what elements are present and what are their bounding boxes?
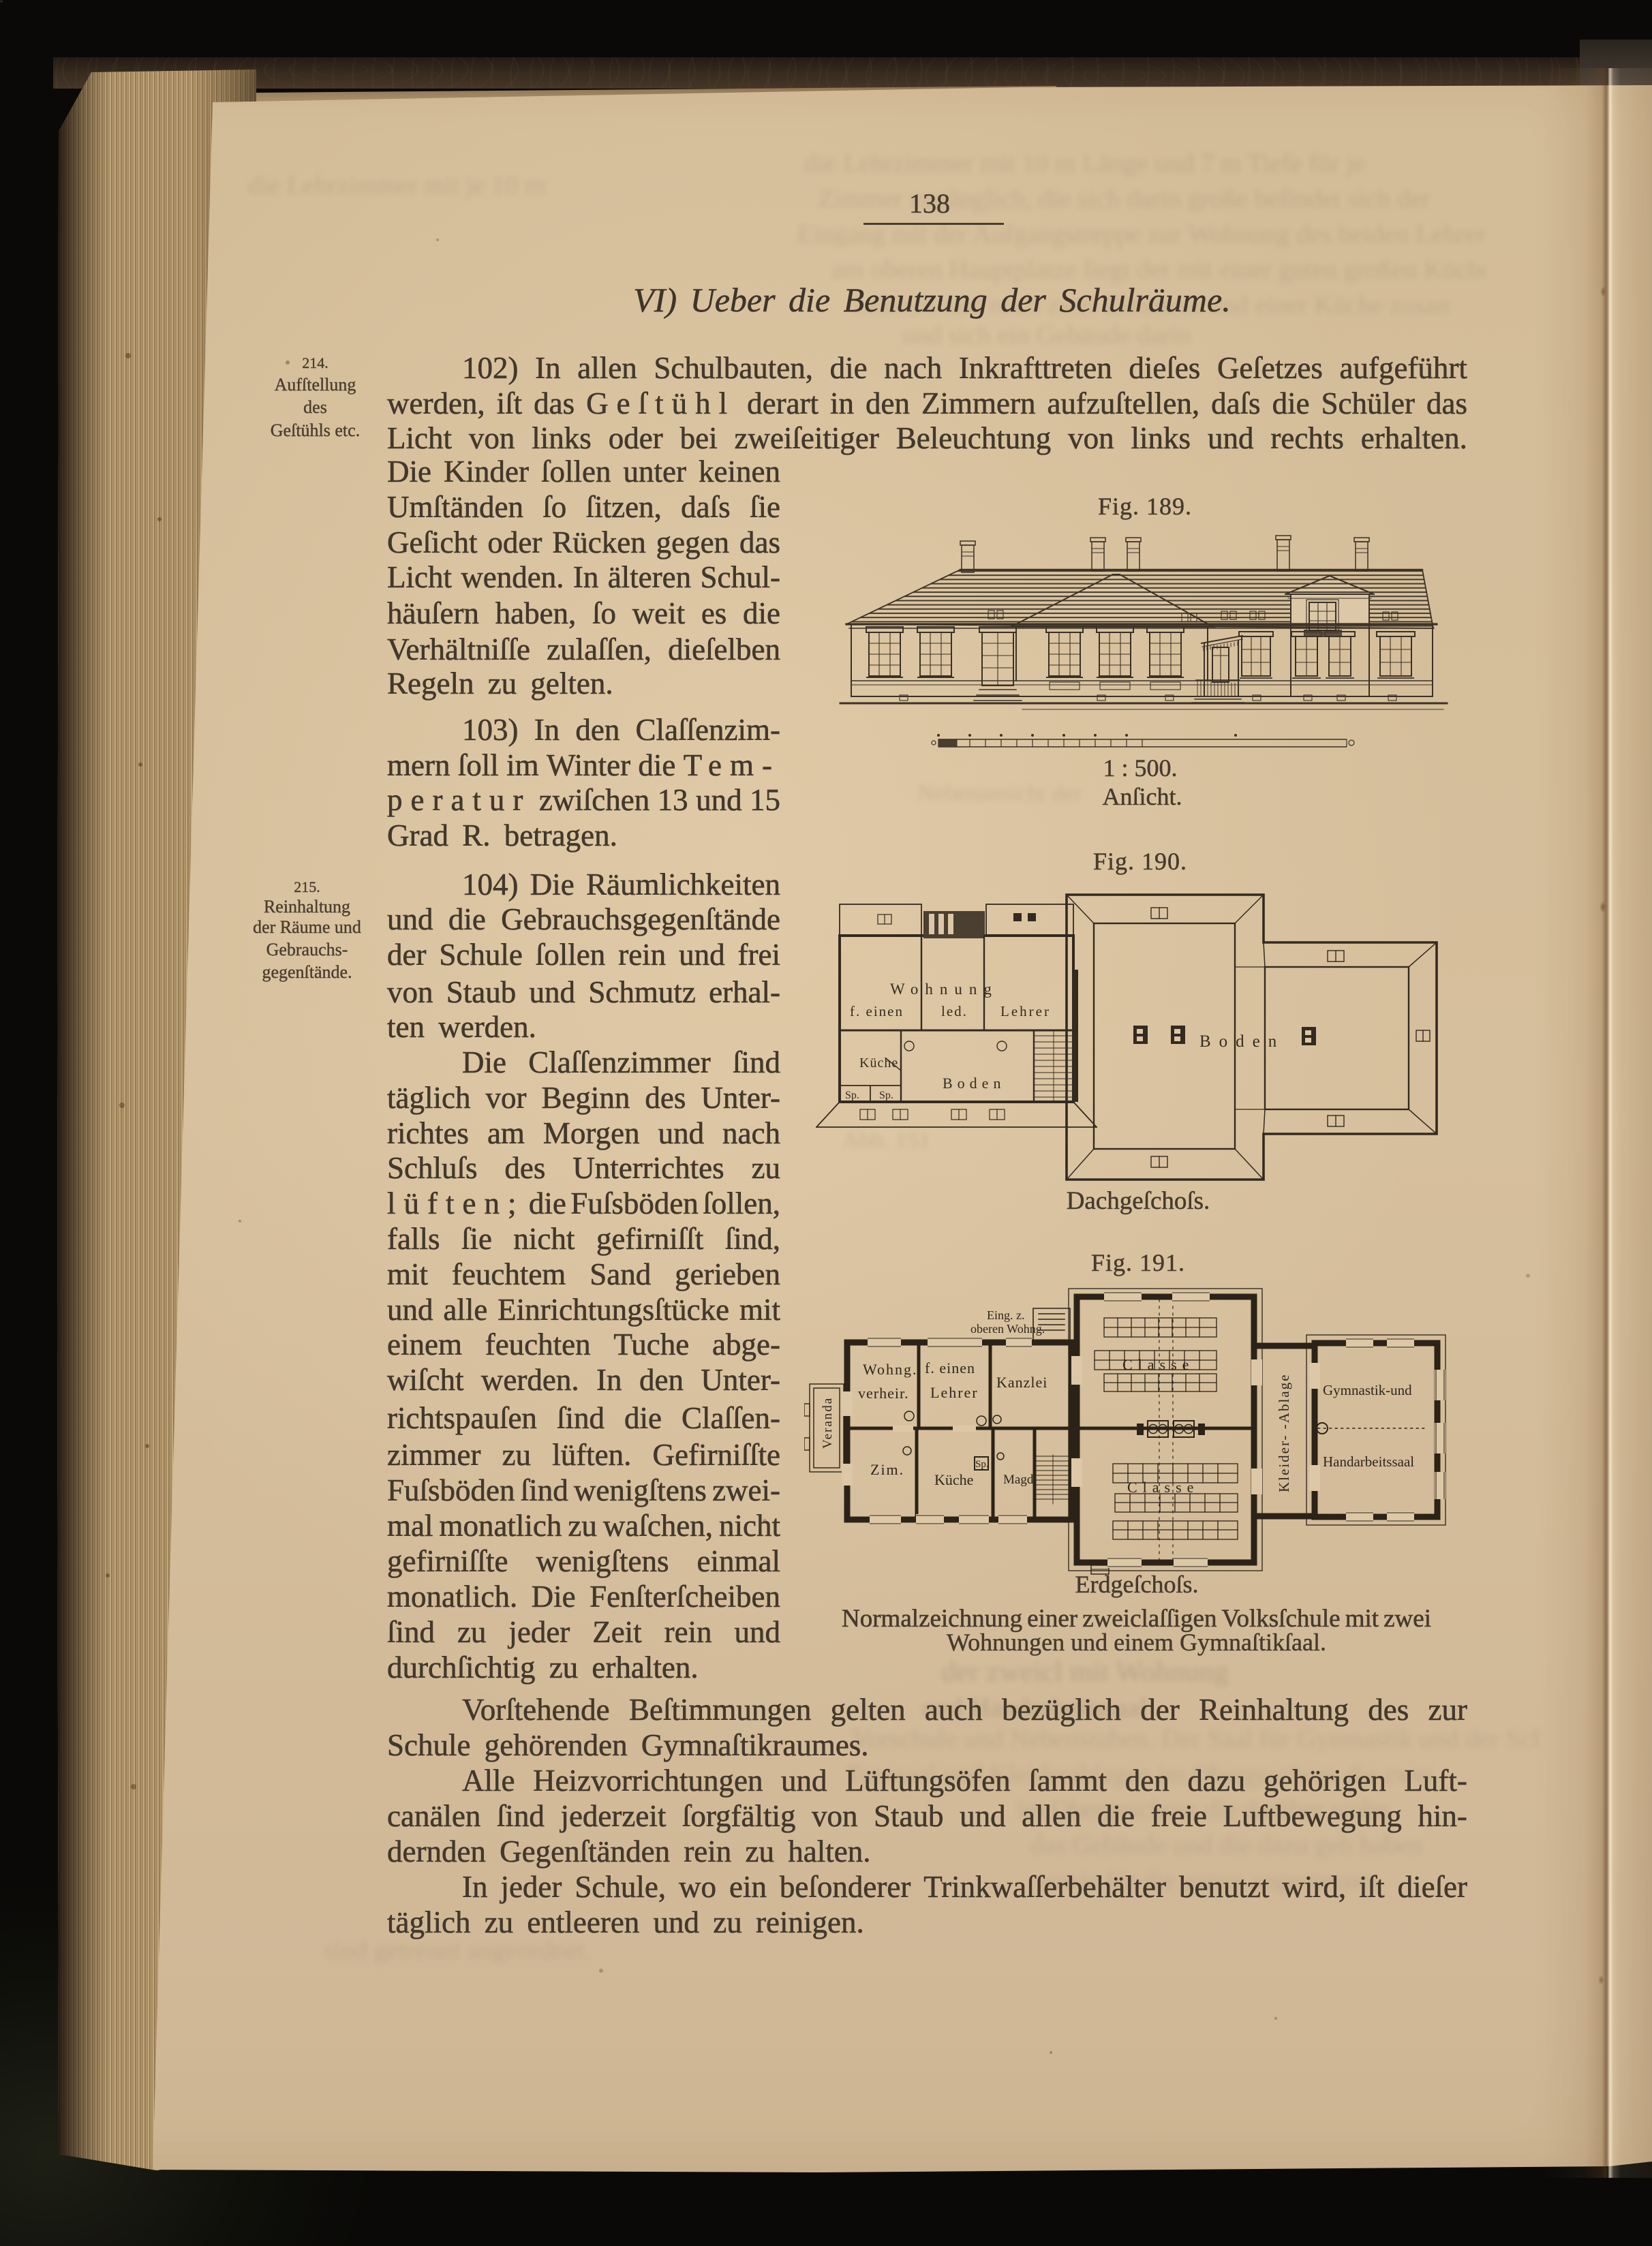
svg-text:Gymnastik-und: Gymnastik-und <box>1323 1382 1412 1398</box>
svg-text:f. einen: f. einen <box>925 1359 975 1376</box>
svg-text:Küche: Küche <box>859 1056 898 1071</box>
svg-text:oberen Wohng.: oberen Wohng. <box>970 1322 1045 1336</box>
svg-text:Kleider- -Ablage: Kleider- -Ablage <box>1276 1374 1292 1492</box>
svg-text:Zim.: Zim. <box>870 1461 904 1478</box>
svg-text:Boden: Boden <box>1199 1032 1285 1051</box>
svg-text:Classe: Classe <box>1122 1356 1194 1373</box>
svg-text:Lehrer: Lehrer <box>930 1384 979 1401</box>
svg-text:Handarbeitssaal: Handarbeitssaal <box>1323 1453 1414 1470</box>
svg-text:Classe: Classe <box>1127 1479 1199 1496</box>
svg-text:Veranda: Veranda <box>821 1397 835 1449</box>
svg-text:Lehrer: Lehrer <box>1000 1003 1051 1019</box>
svg-text:Kanzlei: Kanzlei <box>996 1374 1047 1391</box>
svg-text:Wohng.: Wohng. <box>863 1361 918 1378</box>
svg-text:Sp.: Sp. <box>975 1459 989 1470</box>
svg-text:led.: led. <box>941 1003 968 1019</box>
svg-text:f. einen: f. einen <box>850 1003 904 1019</box>
svg-text:Wohnung: Wohnung <box>890 981 998 998</box>
svg-text:Magd: Magd <box>1003 1473 1034 1487</box>
svg-text:Sp.: Sp. <box>845 1090 859 1101</box>
svg-text:verheir.: verheir. <box>858 1385 909 1402</box>
svg-text:Eing. z.: Eing. z. <box>987 1308 1025 1322</box>
svg-text:Boden: Boden <box>943 1075 1005 1092</box>
svg-text:Sp.: Sp. <box>879 1090 893 1101</box>
svg-text:Küche: Küche <box>934 1471 973 1488</box>
